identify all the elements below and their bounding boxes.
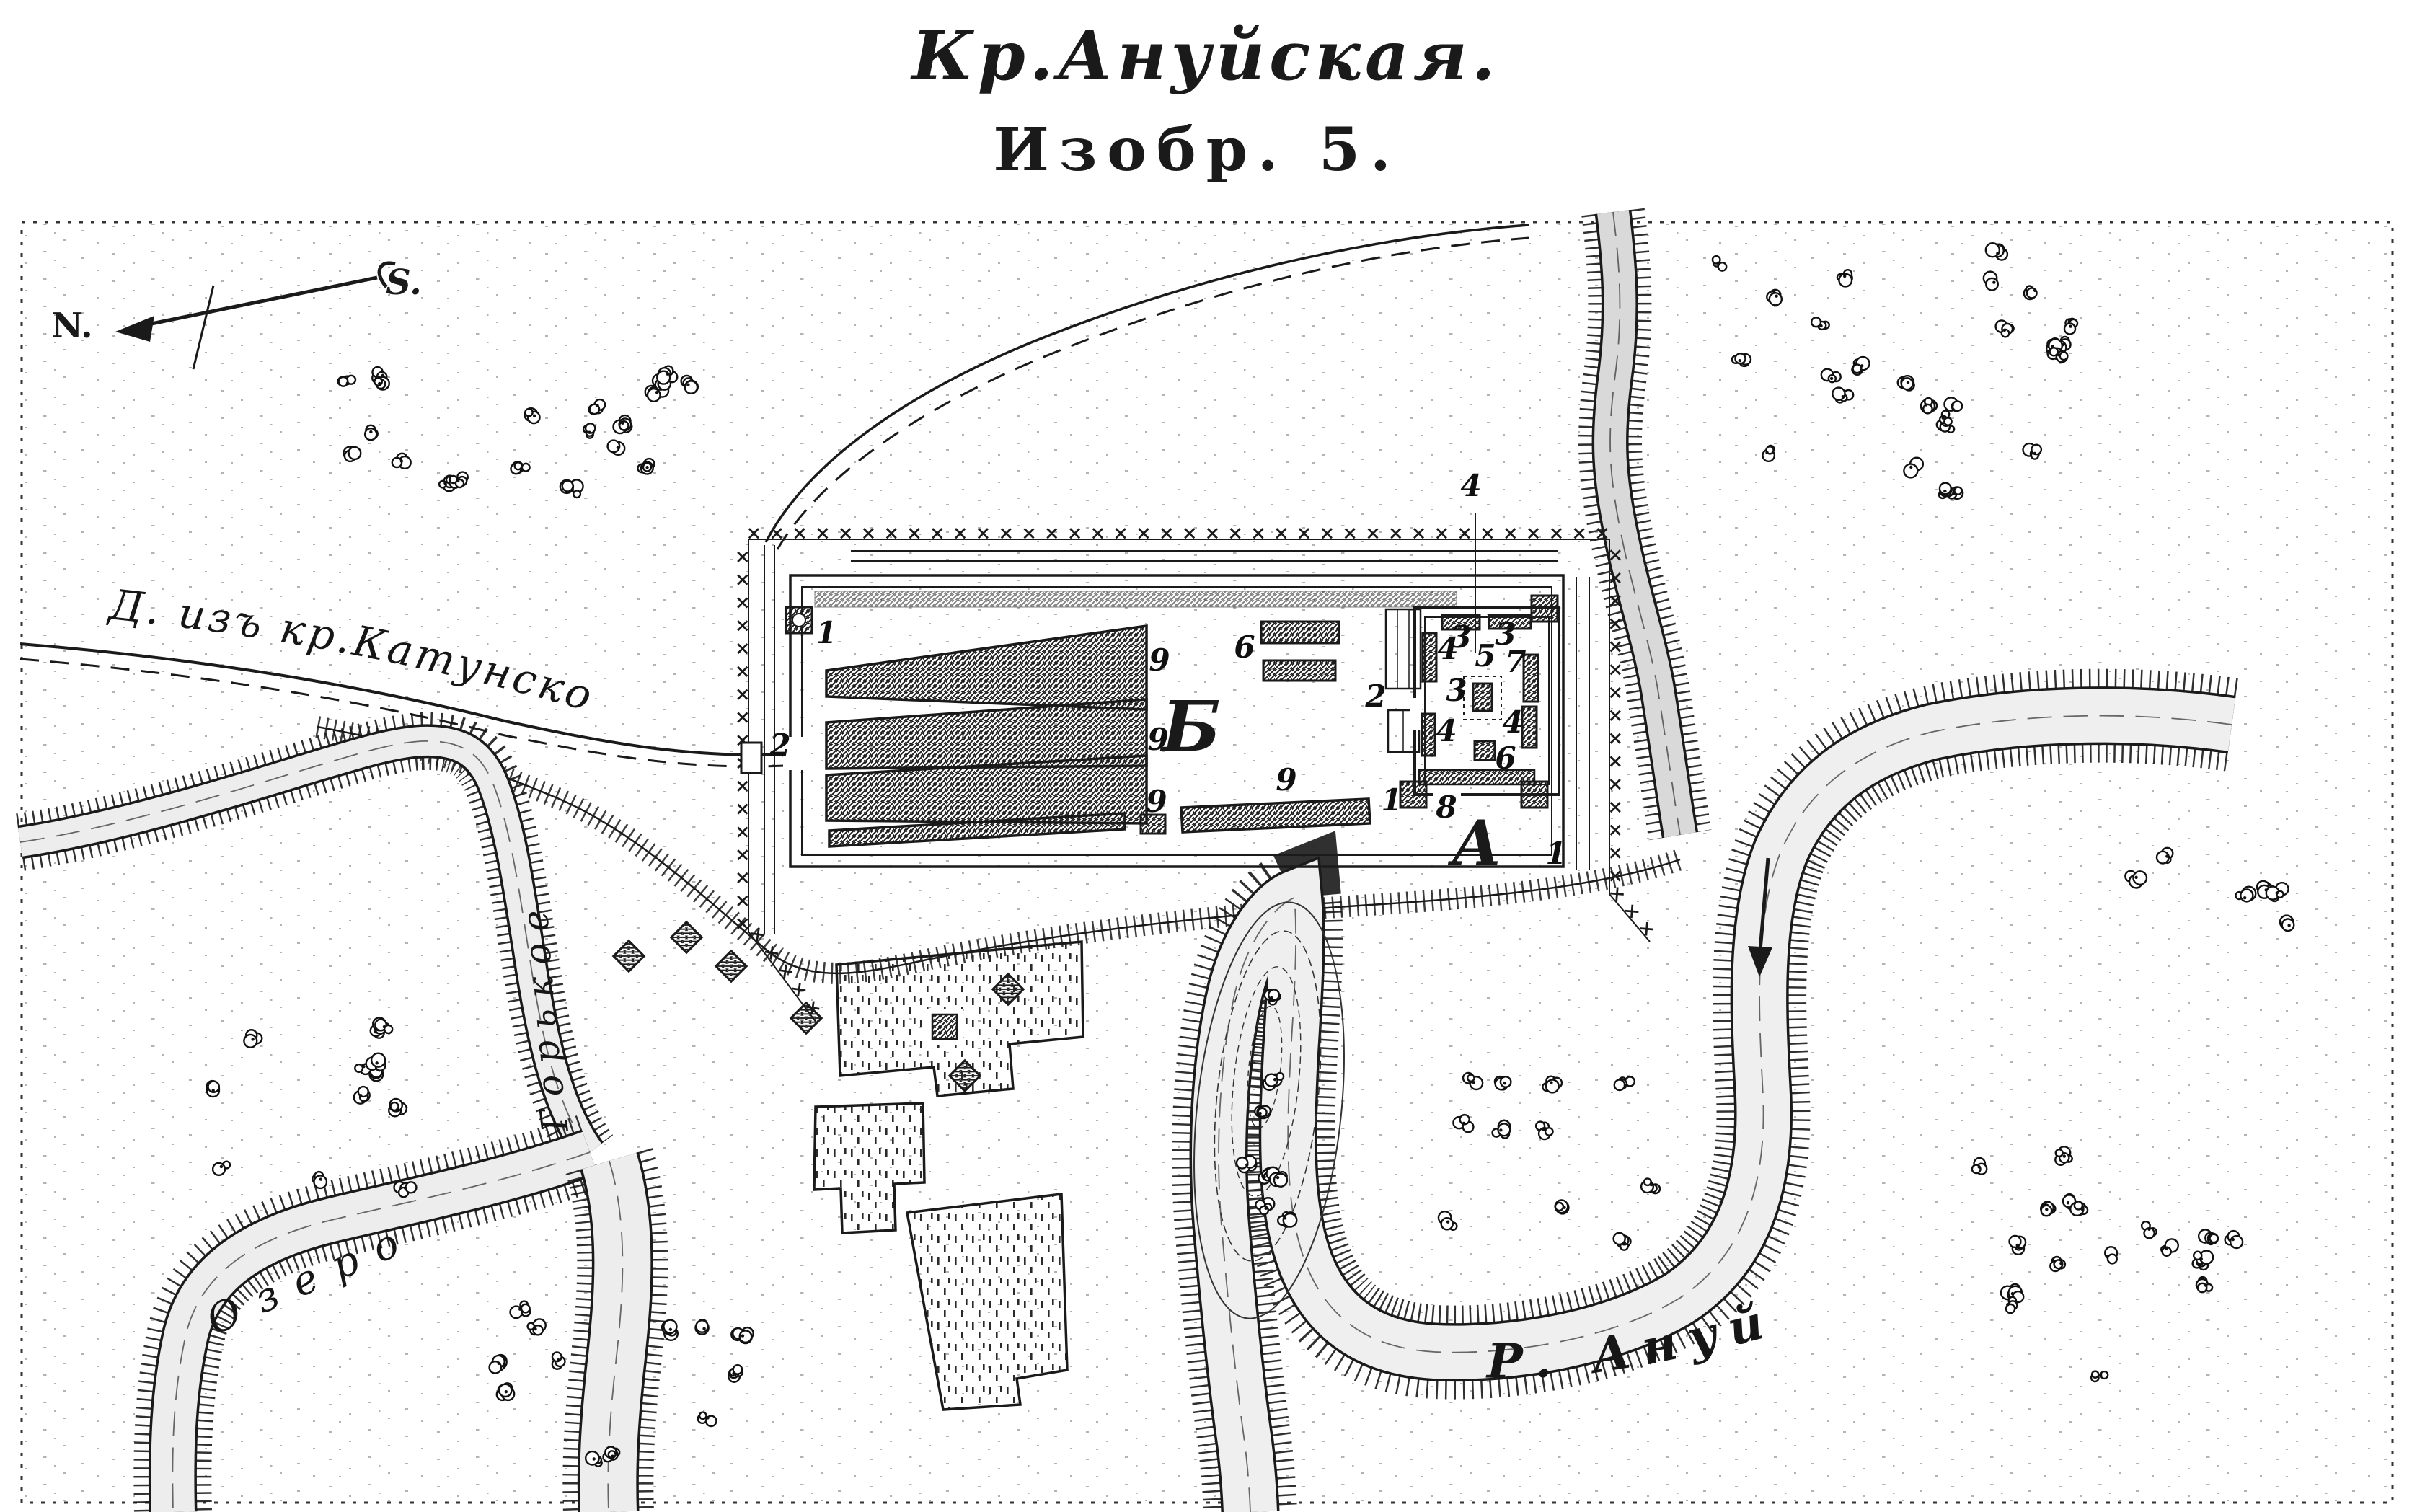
bush-blob (1986, 278, 1998, 291)
bush-dot (596, 404, 598, 407)
legend-marker-4-19: 4 (1502, 704, 1523, 740)
bush-blob (573, 490, 580, 498)
bush-dot (1943, 490, 1946, 492)
compass-north-label: N. (51, 306, 93, 346)
bush-dot (2276, 891, 2279, 894)
bush-blob (355, 1064, 363, 1072)
bush-dot (2006, 1303, 2009, 1306)
bush-dot (2011, 1292, 2014, 1295)
bush-dot (1542, 1128, 1545, 1131)
bush-dot (2059, 1262, 2062, 1265)
bush-blob (1276, 1073, 1284, 1080)
bush-dot (666, 373, 668, 376)
map-page: ××××××××××××××××××××××××××××××××××××××××… (0, 0, 2412, 1512)
legend-marker-9-1: 9 (1149, 642, 1170, 678)
magazine-6b (1263, 660, 1335, 681)
bush-blob (450, 476, 457, 483)
bush-dot (1276, 1176, 1279, 1179)
bush-dot (1977, 1165, 1980, 1168)
bush-dot (1992, 280, 1995, 283)
bush-dot (1739, 359, 1741, 362)
bush-dot (1273, 1078, 1276, 1081)
bush-blob (1441, 1218, 1453, 1229)
bush-dot (1909, 466, 1912, 469)
bush-dot (702, 1327, 705, 1330)
bush-dot (2016, 1244, 2019, 1247)
bush-dot (1563, 1206, 1565, 1209)
bush-dot (621, 422, 624, 425)
legend-marker-3-16: 3 (1446, 673, 1467, 708)
bush-dot (2200, 1257, 2203, 1260)
bush-dot (1284, 1216, 1286, 1219)
bush-dot (1907, 381, 1909, 384)
bush-dot (1843, 275, 1846, 278)
bush-blob (2240, 889, 2253, 901)
bush-dot (346, 381, 349, 384)
bush-dot (655, 391, 658, 394)
bush-blob (392, 458, 402, 467)
bush-blob (586, 1451, 598, 1464)
bush-blob (371, 1053, 385, 1067)
legend-marker-6-20: 6 (1495, 740, 1516, 776)
bush-dot (1775, 294, 1777, 297)
citadel-building-3c (1473, 684, 1492, 711)
legend-marker-9-3: 9 (1146, 784, 1167, 819)
bush-dot (520, 468, 523, 471)
fortress-yard-letter: Б (1162, 686, 1221, 768)
bush-dot (2243, 896, 2246, 899)
bush-dot (2003, 329, 2006, 332)
bush-dot (2033, 289, 2036, 292)
bush-dot (617, 446, 619, 448)
bush-blob (1545, 1128, 1552, 1135)
bush-blob (525, 409, 532, 416)
bush-blob (314, 1175, 326, 1188)
bush-dot (706, 1416, 709, 1419)
bush-dot (1623, 1241, 1626, 1244)
bush-blob (405, 1182, 416, 1193)
citadel-bastion-sw (1400, 782, 1426, 808)
bush-dot (498, 1362, 500, 1365)
bush-dot (1842, 395, 1845, 398)
bush-dot (2287, 924, 2290, 927)
bush-dot (1996, 252, 1999, 255)
bush-blob (348, 447, 361, 459)
legend-marker-2-7: 2 (1364, 678, 1386, 714)
bush-blob (696, 1320, 707, 1332)
bush-dot (2204, 1283, 2207, 1286)
bush-dot (319, 1177, 322, 1180)
bush-blob (2050, 348, 2058, 355)
legend-marker-6-5: 6 (1234, 629, 1255, 665)
map-subtitle: Изобр. 5. (993, 115, 1400, 185)
bush-dot (1263, 1175, 1265, 1178)
bush-blob (2031, 445, 2041, 454)
bush-blob (1944, 417, 1951, 425)
bush-dot (669, 1328, 672, 1331)
bush-dot (1716, 262, 1719, 265)
bush-dot (1270, 996, 1273, 999)
bush-dot (1503, 1082, 1506, 1084)
bush-blob (1274, 1174, 1287, 1187)
bush-dot (220, 1165, 223, 1168)
bush-blob (244, 1035, 257, 1048)
bush-blob (213, 1163, 225, 1175)
citadel-building-4b (1422, 714, 1435, 756)
bush-dot (2080, 1208, 2083, 1211)
legend-marker-1-10: 1 (1545, 836, 1566, 871)
bush-dot (443, 482, 446, 485)
bush-dot (2033, 452, 2036, 455)
compass-south-label: S. (386, 262, 422, 303)
citadel-bastion-se (1521, 782, 1547, 808)
bush-dot (533, 415, 536, 417)
bush-dot (1264, 1207, 1267, 1210)
bush-blob (2060, 352, 2068, 360)
bush-dot (1258, 1112, 1261, 1115)
bush-blob (648, 389, 661, 402)
bush-dot (400, 459, 403, 462)
bush-blob (1853, 364, 1862, 373)
bush-dot (518, 1308, 521, 1311)
bush-dot (2069, 324, 2072, 327)
bush-dot (2099, 1374, 2102, 1376)
bush-dot (456, 479, 459, 482)
bush-blob (1555, 1203, 1563, 1211)
citadel-west-gate-gap (1410, 698, 1422, 730)
bush-dot (251, 1038, 254, 1040)
bush-dot (1245, 1163, 1248, 1166)
bush-blob (365, 428, 376, 440)
bush-blob (2056, 1149, 2063, 1157)
bush-dot (2063, 1154, 2066, 1157)
bush-blob (1770, 293, 1782, 305)
bush-dot (1499, 1128, 1502, 1131)
bush-blob (2010, 1236, 2021, 1247)
bush-dot (2232, 1238, 2235, 1241)
bush-dot (2045, 1208, 2048, 1211)
bush-dot (362, 1065, 365, 1068)
bush-dot (1472, 1081, 1475, 1084)
legend-marker-2-4: 2 (769, 728, 790, 763)
bush-dot (1624, 1084, 1627, 1087)
legend-marker-9-6: 9 (1276, 762, 1296, 797)
bush-dot (741, 1334, 744, 1337)
magazine-6a (1261, 622, 1339, 643)
legend-marker-5-17: 5 (1475, 638, 1496, 673)
bush-dot (505, 1390, 508, 1393)
bush-dot (1860, 364, 1863, 367)
bush-dot (2165, 1247, 2168, 1250)
citadel-letter: А (1452, 808, 1502, 880)
bush-blob (663, 1320, 676, 1333)
citadel-building-6c (1475, 741, 1495, 760)
legend-marker-4-18: 4 (1436, 713, 1457, 748)
bush-dot (378, 382, 381, 385)
bush-dot (686, 384, 689, 386)
bush-dot (375, 1061, 378, 1064)
bush-dot (211, 1089, 214, 1092)
bush-blob (1923, 404, 1932, 413)
bush-blob (2230, 1236, 2243, 1248)
citadel-building-4a (1423, 633, 1436, 681)
bush-dot (1650, 1183, 1653, 1186)
bush-dot (1550, 1081, 1552, 1084)
bush-dot (2207, 1235, 2210, 1238)
bush-dot (2067, 1201, 2069, 1204)
bush-dot (571, 488, 574, 491)
bastion-nw-platform (792, 614, 805, 627)
bush-dot (557, 1358, 560, 1361)
bush-dot (732, 1372, 735, 1375)
bush-blob (1614, 1080, 1625, 1090)
bush-dot (1942, 416, 1945, 419)
bush-blob (2210, 1234, 2218, 1242)
bush-blob (1237, 1157, 1247, 1168)
bush-dot (2165, 854, 2168, 857)
bush-dot (2134, 876, 2137, 879)
bush-blob (1284, 1213, 1297, 1227)
bush-blob (521, 1304, 530, 1313)
bush-dot (1819, 324, 1822, 327)
bush-dot (611, 1454, 614, 1457)
bush-blob (685, 381, 697, 393)
bush-dot (404, 1186, 407, 1189)
bush-dot (1951, 404, 1954, 407)
bush-dot (348, 452, 350, 455)
bush-dot (383, 1025, 386, 1028)
legend-marker-1-0: 1 (816, 615, 836, 650)
bush-dot (2057, 353, 2060, 356)
citadel-building-4c (1522, 707, 1537, 748)
field-plot-1-house (932, 1014, 957, 1039)
legend-marker-7-15: 7 (1505, 644, 1526, 679)
bush-dot (369, 430, 372, 433)
bush-blob (339, 377, 348, 386)
bush-dot (1830, 377, 1833, 380)
bush-dot (645, 466, 648, 469)
bush-dot (1446, 1220, 1449, 1223)
citadel-south-building (1419, 770, 1534, 784)
legend-marker-1-8: 1 (1381, 782, 1402, 818)
bush-dot (1925, 403, 1927, 406)
bush-blob (1953, 401, 1962, 410)
bush-dot (2106, 1255, 2109, 1257)
west-gate-structure (741, 743, 761, 773)
legend-marker-4-11: 4 (1460, 468, 1481, 503)
bush-dot (1462, 1122, 1465, 1125)
bush-blob (1901, 378, 1913, 389)
bush-blob (699, 1412, 706, 1419)
bush-dot (2147, 1228, 2150, 1231)
bush-dot (359, 1094, 362, 1097)
map-title: Кр.Ануйская. (912, 17, 1500, 96)
bush-dot (396, 1108, 399, 1110)
north-banquette (815, 591, 1457, 607)
bush-blob (1811, 317, 1821, 327)
bush-blob (2092, 1371, 2098, 1378)
citadel-bastion-ne (1532, 596, 1558, 622)
bush-blob (1467, 1075, 1474, 1082)
legend-marker-4-14: 4 (1437, 631, 1458, 666)
bush-dot (1765, 451, 1768, 454)
bush-dot (534, 1327, 536, 1330)
bush-dot (588, 430, 591, 433)
bush-dot (592, 1457, 595, 1460)
bush-blob (522, 464, 530, 472)
